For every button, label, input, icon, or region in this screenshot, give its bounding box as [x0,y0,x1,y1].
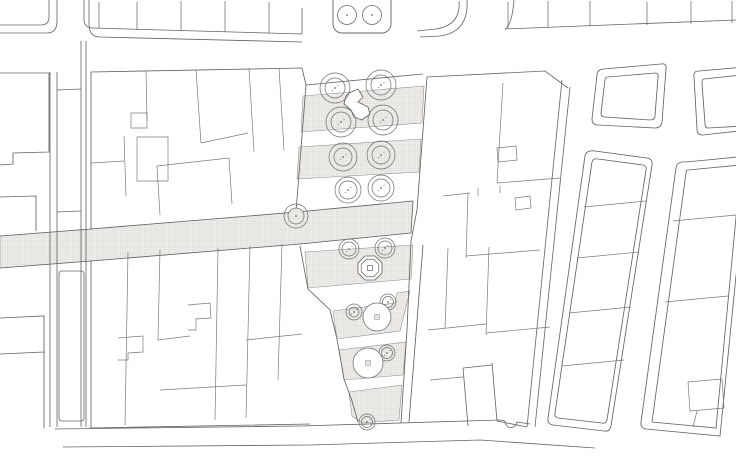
tree-symbol [368,175,394,201]
tree-symbol [335,177,361,203]
tree-planter [333,0,391,33]
site-plan-canvas [0,0,736,460]
tree-symbol [339,239,359,259]
large-tree-symbol [363,303,391,331]
tree-symbol [375,238,395,258]
tree-symbol [359,414,375,430]
site-plan-svg [0,0,736,460]
large-tree-symbol [353,348,383,378]
planter-tree-symbol [363,6,382,25]
planter-tree-symbol [338,6,357,25]
octagon-pavilion [358,256,382,280]
